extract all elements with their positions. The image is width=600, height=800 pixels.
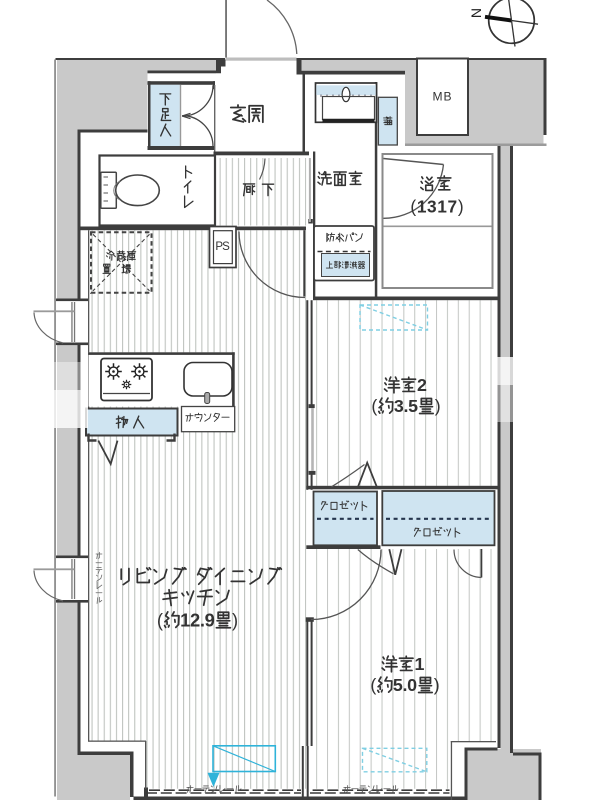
svg-text:5: 5 bbox=[393, 675, 403, 695]
svg-text:1: 1 bbox=[180, 610, 190, 631]
svg-text:2: 2 bbox=[190, 610, 200, 631]
svg-text:(: ( bbox=[410, 197, 416, 217]
svg-text:M: M bbox=[433, 90, 443, 104]
svg-text:(: ( bbox=[371, 396, 377, 416]
svg-text:): ) bbox=[232, 610, 238, 631]
svg-text:9: 9 bbox=[205, 610, 215, 631]
svg-text:2: 2 bbox=[417, 375, 427, 395]
svg-text:1: 1 bbox=[415, 654, 425, 674]
svg-text:S: S bbox=[222, 241, 230, 253]
svg-text:3: 3 bbox=[427, 197, 437, 217]
svg-text:5: 5 bbox=[408, 396, 418, 416]
svg-text:1: 1 bbox=[437, 197, 447, 217]
svg-text:7: 7 bbox=[448, 197, 458, 217]
svg-text:): ) bbox=[435, 396, 441, 416]
svg-text:(: ( bbox=[370, 675, 376, 695]
svg-text:): ) bbox=[458, 197, 464, 217]
svg-text:): ) bbox=[434, 675, 440, 695]
svg-text:(: ( bbox=[157, 610, 163, 631]
svg-text:0: 0 bbox=[407, 675, 417, 695]
svg-text:B: B bbox=[444, 90, 452, 104]
svg-text:1: 1 bbox=[417, 197, 427, 217]
svg-text:3: 3 bbox=[394, 396, 404, 416]
svg-text:N: N bbox=[469, 8, 485, 18]
